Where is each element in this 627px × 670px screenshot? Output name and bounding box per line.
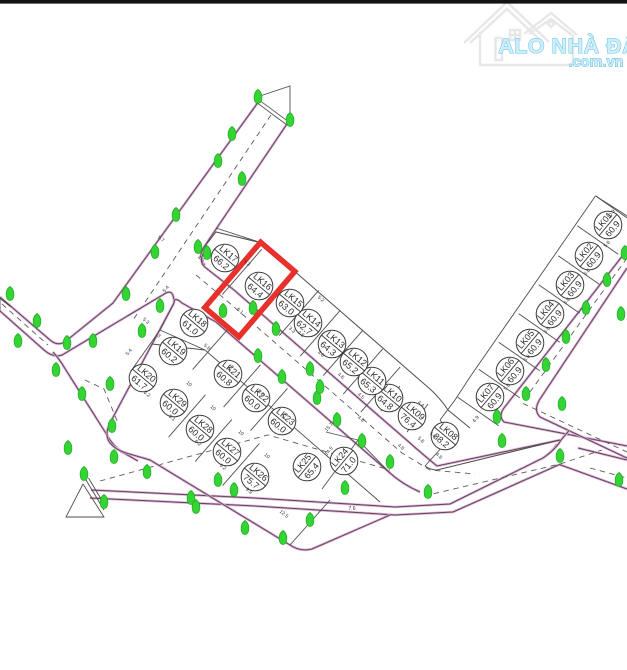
svg-text:.com.vn: .com.vn (569, 55, 624, 71)
svg-text:7.6: 7.6 (349, 506, 356, 512)
